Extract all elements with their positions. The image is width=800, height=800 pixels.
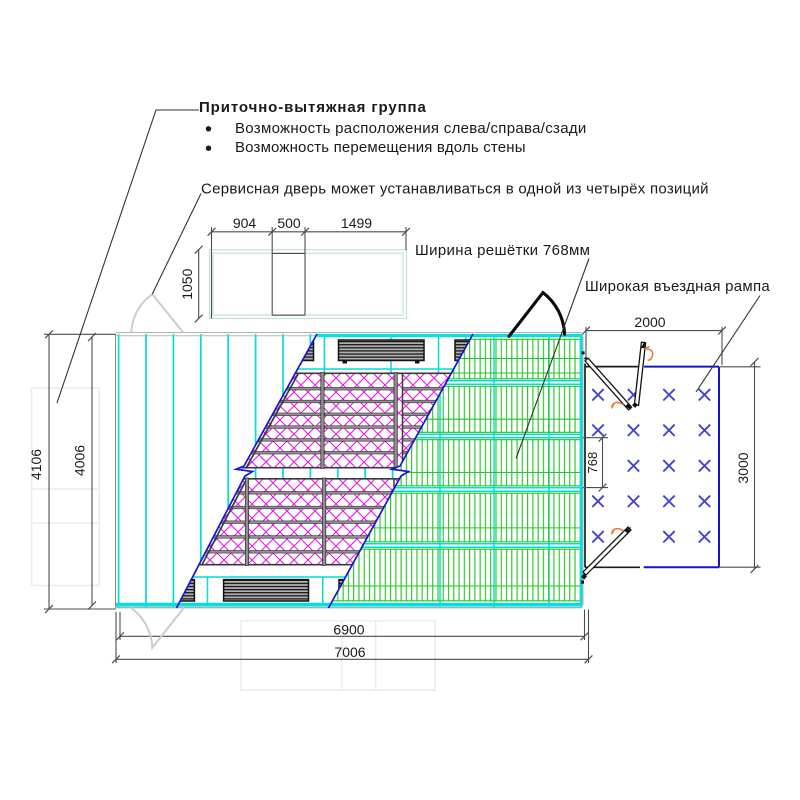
svg-text:Возможность перемещения вдоль: Возможность перемещения вдоль стены bbox=[235, 139, 526, 156]
svg-text:2000: 2000 bbox=[634, 314, 665, 330]
svg-text:7006: 7006 bbox=[334, 644, 365, 660]
svg-text:4006: 4006 bbox=[72, 445, 88, 476]
svg-text:768: 768 bbox=[585, 452, 600, 474]
svg-text:4106: 4106 bbox=[28, 449, 44, 480]
svg-text:Возможность расположения слева: Возможность расположения слева/справа/сз… bbox=[235, 120, 587, 137]
svg-text:1499: 1499 bbox=[341, 215, 372, 231]
svg-text:Приточно-вытяжная группа: Приточно-вытяжная группа bbox=[199, 99, 427, 116]
svg-text:3000: 3000 bbox=[735, 452, 751, 483]
svg-text:500: 500 bbox=[277, 215, 301, 231]
svg-text:1050: 1050 bbox=[179, 268, 195, 299]
svg-text:Сервисная дверь может устанавл: Сервисная дверь может устанавливаться в … bbox=[201, 180, 709, 197]
svg-text:Ширина решётки 768мм: Ширина решётки 768мм bbox=[415, 242, 590, 259]
svg-text:904: 904 bbox=[233, 215, 257, 231]
svg-text:Широкая въездная рампа: Широкая въездная рампа bbox=[585, 278, 770, 295]
svg-text:6900: 6900 bbox=[333, 621, 364, 637]
